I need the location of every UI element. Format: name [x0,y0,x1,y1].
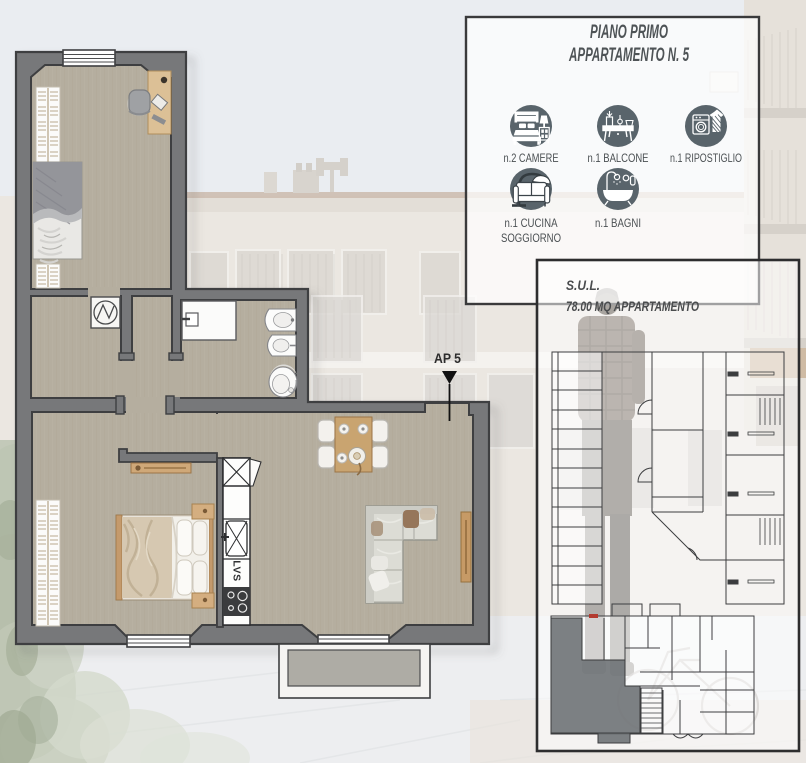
svg-text:n.2 CAMERE: n.2 CAMERE [504,151,559,165]
svg-text:n.1 CUCINA: n.1 CUCINA [505,216,558,230]
svg-text:PIANO PRIMO: PIANO PRIMO [590,22,668,43]
svg-text:APPARTAMENTO N. 5: APPARTAMENTO N. 5 [568,45,689,66]
svg-text:n.1 BALCONE: n.1 BALCONE [588,151,649,165]
svg-text:LVS: LVS [231,560,243,581]
svg-text:n.1 RIPOSTIGLIO: n.1 RIPOSTIGLIO [670,151,742,165]
svg-text:S.U.L.: S.U.L. [566,277,600,293]
svg-text:SOGGIORNO: SOGGIORNO [501,231,561,245]
svg-text:AP 5: AP 5 [434,351,461,366]
svg-text:78.00 MQ APPARTAMENTO: 78.00 MQ APPARTAMENTO [566,298,699,314]
svg-text:n.1 BAGNI: n.1 BAGNI [595,216,641,230]
